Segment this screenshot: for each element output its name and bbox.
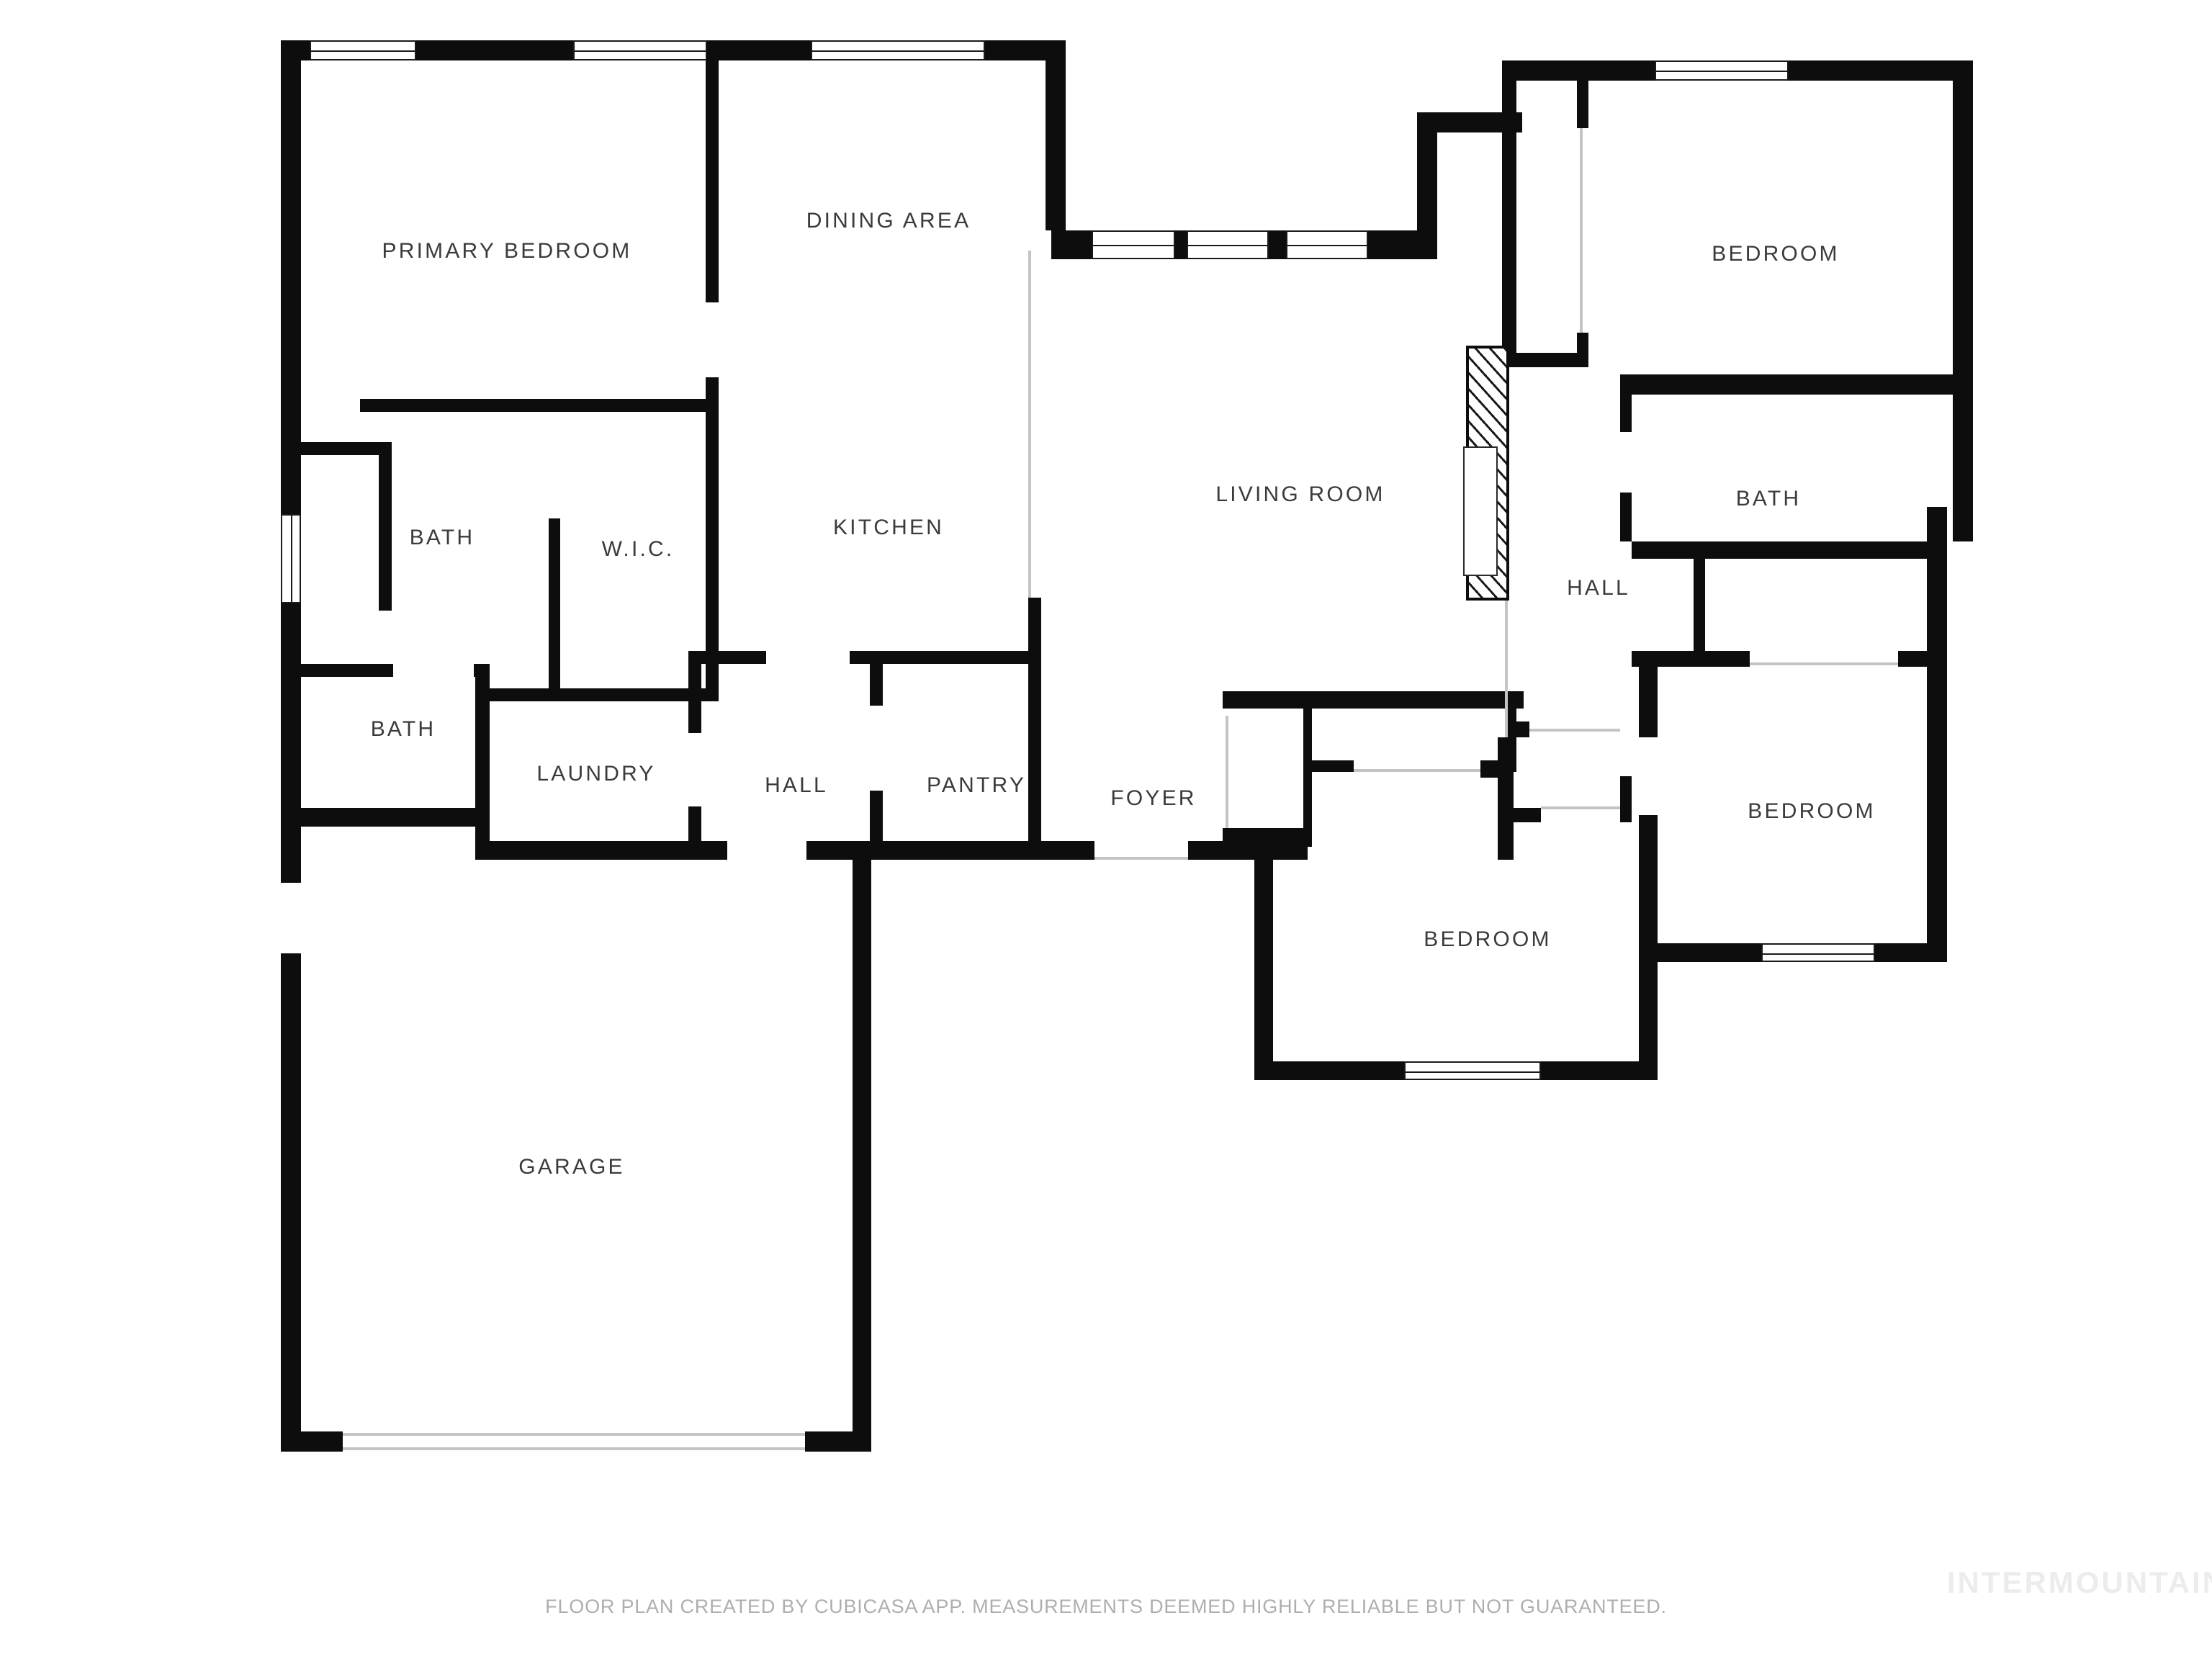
window xyxy=(1286,230,1368,259)
wall xyxy=(1639,815,1658,1080)
opening-threshold-line xyxy=(1541,806,1620,809)
opening-threshold-line xyxy=(1354,769,1480,772)
wall xyxy=(1577,333,1588,367)
room-label-bedroom-top-right: BEDROOM xyxy=(1712,242,1839,266)
wall xyxy=(281,40,301,514)
wall xyxy=(688,806,701,860)
wall xyxy=(475,664,490,860)
opening-threshold-line xyxy=(1505,601,1508,737)
wall xyxy=(1417,112,1437,259)
room-label-pantry: PANTRY xyxy=(927,773,1026,798)
opening-threshold-line xyxy=(1580,128,1583,333)
room-label-hall-right: HALL xyxy=(1567,576,1630,601)
wall xyxy=(688,651,766,664)
wall xyxy=(806,841,1094,860)
floor-plan: PRIMARY BEDROOM DINING AREA BEDROOM BATH… xyxy=(0,0,2212,1659)
window xyxy=(1404,1061,1541,1080)
wall xyxy=(1620,374,1953,395)
wall xyxy=(853,860,871,1452)
opening-threshold-line xyxy=(343,1447,805,1450)
wall xyxy=(706,60,719,302)
wall xyxy=(1254,847,1273,1080)
room-label-bath-primary: BATH xyxy=(410,526,475,550)
wall xyxy=(1514,721,1529,737)
room-label-primary-bedroom: PRIMARY BEDROOM xyxy=(382,239,632,264)
wall xyxy=(1303,709,1312,847)
window xyxy=(1092,230,1175,259)
wall xyxy=(1632,541,1927,559)
room-label-hall-center: HALL xyxy=(765,773,828,798)
wall xyxy=(1639,651,1658,737)
wall xyxy=(706,412,719,688)
wall xyxy=(1620,776,1632,822)
wall xyxy=(1620,493,1632,541)
footer-disclaimer: FLOOR PLAN CREATED BY CUBICASA APP. MEAS… xyxy=(545,1596,1667,1617)
room-label-garage: GARAGE xyxy=(518,1155,625,1179)
wall xyxy=(1694,541,1705,651)
window xyxy=(1655,60,1789,81)
room-label-bath-right: BATH xyxy=(1736,487,1802,511)
opening-threshold-line xyxy=(1750,662,1898,665)
wall xyxy=(360,399,719,412)
wall xyxy=(1577,81,1588,128)
wall xyxy=(379,455,392,611)
wall xyxy=(1223,691,1524,709)
stair-hatch-notch xyxy=(1463,446,1498,576)
wall xyxy=(1502,353,1588,367)
wall xyxy=(1620,374,1632,432)
wall xyxy=(549,518,560,688)
wall xyxy=(1953,60,1973,541)
window xyxy=(1761,943,1875,962)
wall xyxy=(870,791,883,860)
watermark-intermountain: INTERMOUNTAIN xyxy=(1947,1567,2212,1601)
wall xyxy=(281,1431,343,1452)
room-label-wic: W.I.C. xyxy=(602,537,675,562)
room-label-bedroom-bottom-middle: BEDROOM xyxy=(1424,927,1551,952)
wall xyxy=(1898,651,1927,667)
window xyxy=(1187,230,1269,259)
opening-threshold-line xyxy=(1094,857,1188,860)
room-label-living-room: LIVING ROOM xyxy=(1215,482,1385,507)
wall xyxy=(281,808,490,827)
wall xyxy=(1502,60,1516,364)
room-label-foyer: FOYER xyxy=(1110,786,1196,811)
wall xyxy=(1927,507,1947,962)
floor-plan-page: PRIMARY BEDROOM DINING AREA BEDROOM BATH… xyxy=(0,0,2212,1659)
room-label-laundry: LAUNDRY xyxy=(536,762,655,786)
room-label-kitchen: KITCHEN xyxy=(833,516,944,540)
wall xyxy=(850,651,1031,664)
wall xyxy=(870,664,883,706)
wall xyxy=(1312,760,1354,772)
wall xyxy=(688,664,701,733)
wall xyxy=(1223,828,1309,847)
room-label-dining-area: DINING AREA xyxy=(806,209,971,233)
opening-threshold-line xyxy=(343,1433,805,1436)
wall xyxy=(301,664,393,677)
opening-threshold-line xyxy=(1028,251,1031,598)
wall xyxy=(281,953,301,1452)
wall xyxy=(1514,808,1541,822)
wall xyxy=(1046,40,1066,230)
wall xyxy=(1480,760,1505,778)
opening-threshold-line xyxy=(1226,716,1228,828)
window xyxy=(811,40,985,60)
window xyxy=(310,40,416,60)
room-label-bath-second: BATH xyxy=(371,717,436,742)
wall xyxy=(490,688,719,701)
window xyxy=(281,514,301,603)
wall xyxy=(281,603,301,883)
room-label-bedroom-right: BEDROOM xyxy=(1748,799,1875,824)
window xyxy=(573,40,707,60)
opening-threshold-line xyxy=(1529,729,1620,732)
wall xyxy=(301,442,392,455)
wall xyxy=(1028,598,1041,860)
